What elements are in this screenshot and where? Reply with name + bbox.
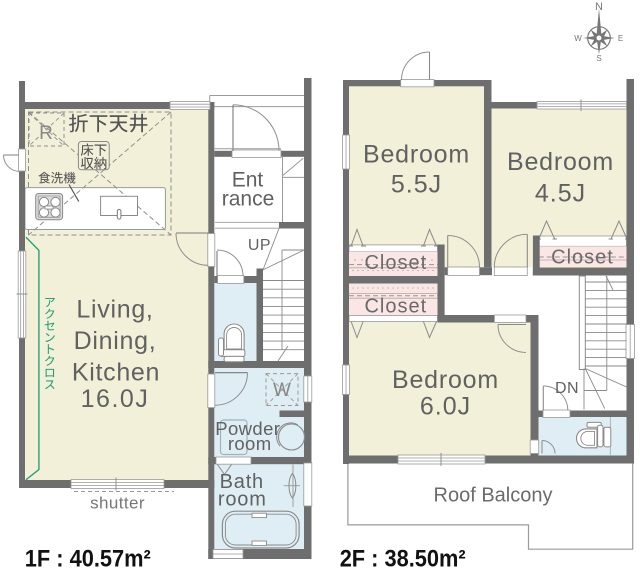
svg-text:W: W — [574, 34, 582, 43]
svg-text:2F : 38.50m²: 2F : 38.50m² — [340, 546, 466, 572]
svg-text:Living,: Living, — [76, 296, 153, 324]
svg-text:W: W — [273, 380, 291, 401]
svg-text:room: room — [228, 433, 272, 454]
svg-text:16.0J: 16.0J — [81, 385, 150, 413]
svg-text:rance: rance — [222, 187, 275, 210]
svg-text:S: S — [596, 54, 601, 63]
svg-text:Closet: Closet — [551, 246, 614, 268]
svg-text:N: N — [595, 1, 603, 13]
svg-text:Roof Balcony: Roof Balcony — [434, 485, 553, 507]
svg-text:Bedroom: Bedroom — [507, 148, 614, 176]
svg-text:shutter: shutter — [90, 494, 145, 513]
svg-text:UP: UP — [248, 237, 271, 254]
svg-text:5.5J: 5.5J — [391, 171, 442, 199]
svg-text:Bedroom: Bedroom — [392, 366, 499, 394]
svg-text:room: room — [218, 489, 267, 511]
svg-text:1F : 40.57m²: 1F : 40.57m² — [25, 546, 151, 572]
svg-text:DN: DN — [555, 380, 579, 397]
svg-text:4.5J: 4.5J — [535, 180, 586, 208]
svg-text:Kitchen: Kitchen — [72, 359, 160, 387]
svg-text:Dining,: Dining, — [74, 327, 157, 355]
svg-text:Bedroom: Bedroom — [363, 141, 470, 169]
svg-text:6.0J: 6.0J — [420, 393, 471, 421]
svg-text:R: R — [39, 123, 53, 144]
svg-text:Closet: Closet — [364, 295, 427, 317]
svg-text:Closet: Closet — [364, 252, 427, 274]
svg-text:E: E — [618, 34, 623, 43]
